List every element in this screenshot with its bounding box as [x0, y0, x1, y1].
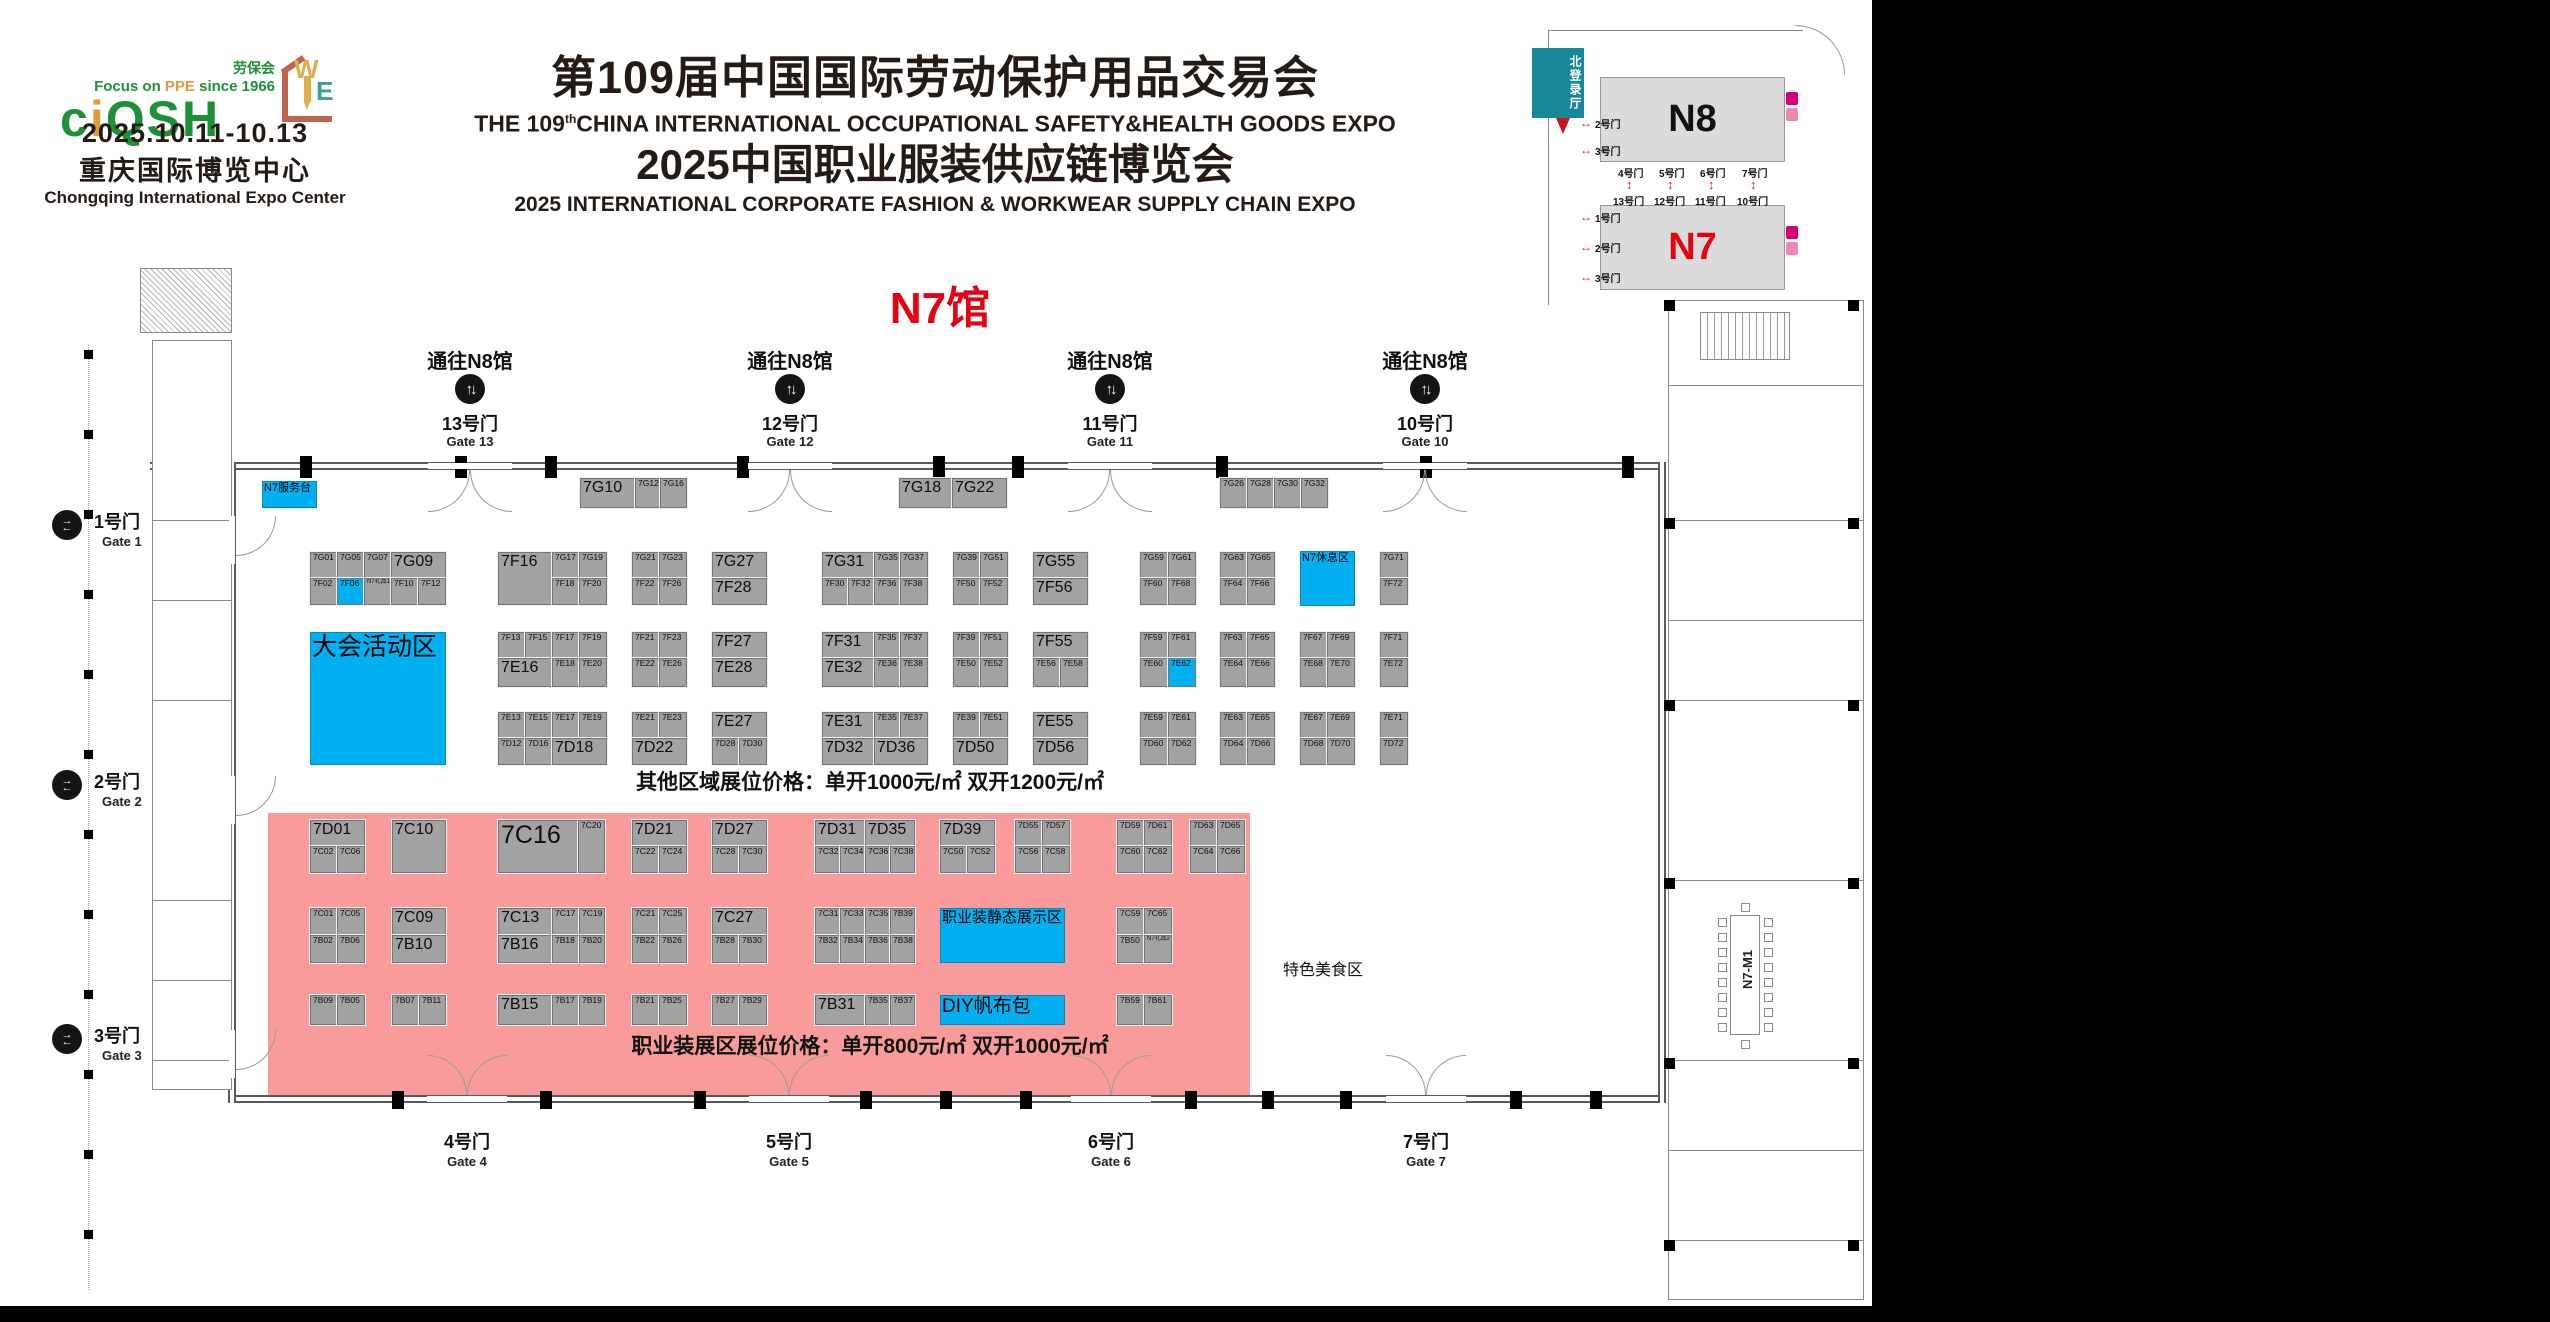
chair [1764, 993, 1773, 1002]
booth-7D39: 7D39 [940, 820, 995, 846]
booth-7G65: 7G65 [1247, 552, 1275, 578]
booth-7E50: 7E50 [953, 658, 980, 687]
zone-DIY帆布包: DIY帆布包 [940, 995, 1065, 1025]
expo-floorplan-page: 劳保会 Focus on PPE since 1966 ciQSH W E 20… [0, 0, 2550, 1322]
pillar [1664, 700, 1675, 711]
chair [1764, 1008, 1773, 1017]
door-opening [427, 1096, 507, 1102]
booth-7D12: 7D12 [498, 738, 525, 765]
pillar [1664, 878, 1675, 889]
booth-7C21: 7C21 [632, 908, 659, 935]
chair [1718, 978, 1727, 987]
booth-7F16: 7F16 [498, 552, 552, 605]
left-annex [152, 340, 232, 1090]
booth-7B31: 7B31 [815, 995, 865, 1025]
booth-7B30: 7B30 [739, 935, 767, 963]
booth-7B36: 7B36 [865, 935, 890, 963]
logo-tagline-cn: 劳保会 [233, 58, 275, 78]
booth-7F63: 7F63 [1220, 632, 1247, 658]
booth-7D62: 7D62 [1168, 738, 1196, 765]
booth-7C30: 7C30 [739, 846, 767, 873]
booth-7E65: 7E65 [1247, 712, 1275, 738]
booth-7E55: 7E55 [1033, 712, 1088, 738]
pillar [1622, 456, 1634, 478]
booth-7G19: 7G19 [579, 552, 607, 578]
booth-7D36: 7D36 [874, 738, 928, 765]
booth-7E68: 7E68 [1300, 658, 1327, 687]
pillar [540, 1091, 552, 1109]
booth-7F26: 7F26 [659, 578, 687, 605]
booth-7E17: 7E17 [552, 712, 579, 738]
booth-7C28: 7C28 [712, 846, 739, 873]
booth-7F50: 7F50 [953, 578, 980, 605]
food-zone-label: 特色美食区 [1283, 956, 1363, 980]
booth-7D59: 7D59 [1117, 820, 1144, 846]
venue-en: Chongqing International Expo Center [30, 188, 360, 208]
door-opening [428, 463, 512, 469]
gate-label-en: Gate 10 [1380, 434, 1470, 449]
booth-7F12: 7F12 [418, 578, 446, 605]
booth-7C19: 7C19 [579, 908, 605, 935]
booth-7B61: 7B61 [1144, 995, 1172, 1025]
booth-7B22: 7B22 [632, 935, 659, 963]
booth-7E27: 7E27 [712, 712, 767, 738]
booth-7E39: 7E39 [953, 712, 980, 738]
booth-7D32: 7D32 [822, 738, 874, 765]
booth-7B21: 7B21 [632, 995, 659, 1025]
booth-7F13: 7F13 [498, 632, 525, 658]
booth-7G32: 7G32 [1301, 478, 1328, 508]
booth-7B11: 7B11 [419, 995, 446, 1025]
minimap-gate-label: 2号门 [1595, 240, 1621, 255]
booth-7E13: 7E13 [498, 712, 525, 738]
booth-7F55: 7F55 [1033, 632, 1088, 658]
booth-7F17: 7F17 [552, 632, 579, 658]
booth-7G59: 7G59 [1140, 552, 1168, 578]
booth-7C06: 7C06 [337, 846, 365, 873]
booth-7G17: 7G17 [552, 552, 579, 578]
booth-7F19: 7F19 [579, 632, 607, 658]
chair [1718, 948, 1727, 957]
gate-label-cn: 11号门 [1065, 410, 1155, 436]
booth-7B34: 7B34 [840, 935, 865, 963]
booth-7F69: 7F69 [1327, 632, 1355, 658]
booth-7C13: 7C13 [498, 908, 552, 935]
booth-7C05: 7C05 [337, 908, 365, 935]
minimap-red-arrow: ↕ [1750, 177, 1757, 192]
gate-label-cn: 12号门 [745, 410, 835, 436]
booth-7D18: 7D18 [552, 738, 607, 765]
booth-7F56: 7F56 [1033, 578, 1088, 605]
minimap-gate-label: 2号门 [1595, 116, 1621, 131]
booth-7B20: 7B20 [579, 935, 605, 963]
booth-7D65: 7D65 [1217, 820, 1245, 846]
chair [1764, 963, 1773, 972]
event-dates: 2025.10.11-10.13 [30, 118, 360, 149]
door-swing-arc [428, 470, 470, 512]
chair [1741, 903, 1750, 912]
booth-7B50: 7B50 [1117, 935, 1144, 963]
minimap-red-arrow: ↔ [1580, 270, 1592, 284]
booth-7E52: 7E52 [980, 658, 1008, 687]
booth-7F37: 7F37 [900, 632, 928, 658]
booth-7D66: 7D66 [1247, 738, 1275, 765]
pillar [694, 1091, 706, 1109]
zone-职业装静态展示区: 职业装静态展示区 [940, 908, 1065, 963]
booth-7G27: 7G27 [712, 552, 767, 578]
booth-7B32: 7B32 [815, 935, 840, 963]
booth-7F39: 7F39 [953, 632, 980, 658]
booth-7B25: 7B25 [659, 995, 687, 1025]
booth-7F06: 7F06 [337, 578, 364, 605]
booth-7D60: 7D60 [1140, 738, 1168, 765]
pass-to-n8-label: 通往N8馆 [1065, 345, 1155, 374]
title2-en: 2025 INTERNATIONAL CORPORATE FASHION & W… [470, 191, 1400, 219]
minimap-gate-label: 12号门 [1654, 193, 1685, 208]
booth-7G31: 7G31 [822, 552, 874, 578]
booth-7B07: 7B07 [392, 995, 419, 1025]
booth-7C22: 7C22 [632, 846, 659, 873]
pillar [1664, 1058, 1675, 1069]
minimap-gate-label: 3号门 [1595, 143, 1621, 158]
booth-7E69: 7E69 [1327, 712, 1355, 738]
chair [1718, 933, 1727, 942]
booth-7G63: 7G63 [1220, 552, 1247, 578]
workwear-expo-logo: W E [282, 58, 348, 118]
booth-7E71: 7E71 [1380, 712, 1408, 738]
booth-7E28: 7E28 [712, 658, 767, 687]
booth-7D64: 7D64 [1220, 738, 1247, 765]
booth-7G37: 7G37 [900, 552, 928, 578]
booth-7G30: 7G30 [1274, 478, 1301, 508]
booth-7E16: 7E16 [498, 658, 552, 687]
booth-7E20: 7E20 [579, 658, 607, 687]
booth-7C17: 7C17 [552, 908, 579, 935]
pillar [1664, 300, 1675, 311]
chair [1718, 1023, 1727, 1032]
pillar [84, 990, 93, 999]
booth-7B05: 7B05 [337, 995, 365, 1025]
booth-7B16: 7B16 [498, 935, 552, 963]
booth-7F38: 7F38 [900, 578, 928, 605]
booth-7G05: 7G05 [337, 552, 364, 578]
booth-7G26: 7G26 [1220, 478, 1247, 508]
door-swing-arc [1110, 470, 1152, 512]
booth-7B59: 7B59 [1117, 995, 1144, 1025]
booth-7F23: 7F23 [659, 632, 687, 658]
gate-label-cn: 6号门 [1066, 1128, 1156, 1154]
site-boundary [88, 345, 89, 1290]
title2-cn: 2025中国职业服装供应链博览会 [470, 139, 1400, 191]
booth-7F65: 7F65 [1247, 632, 1275, 658]
booth-7D61: 7D61 [1144, 820, 1172, 846]
door-opening [749, 1096, 829, 1102]
booth-7G18: 7G18 [899, 478, 952, 508]
pillar [84, 670, 93, 679]
booth-7G10: 7G10 [580, 478, 635, 508]
booth-7E38: 7E38 [900, 658, 928, 687]
zone-N7休息区: N7休息区 [1300, 551, 1355, 606]
pillar [84, 1070, 93, 1079]
gate-label-cn: 1号门 [94, 508, 140, 534]
booth-7F66: 7F66 [1247, 578, 1275, 605]
booth-7E26: 7E26 [659, 658, 687, 687]
pillar [1262, 1091, 1274, 1109]
zone-N7服务台: N7服务台 [262, 481, 317, 508]
gate-label-cn: 5号门 [744, 1128, 834, 1154]
booth-7E59: 7E59 [1140, 712, 1168, 738]
booth-7C59: 7C59 [1117, 908, 1144, 935]
chair [1764, 1023, 1773, 1032]
minimap-red-arrow: ↕ [1708, 177, 1715, 192]
pillar [1848, 878, 1859, 889]
minimap-hall-n7: N7 [1600, 205, 1785, 290]
pillar [1848, 1240, 1859, 1251]
booth-7E22: 7E22 [632, 658, 659, 687]
gate-label-cn: 10号门 [1380, 410, 1470, 436]
leftright-arrows-icon: →← [52, 1024, 82, 1054]
booth-7E61: 7E61 [1168, 712, 1196, 738]
booth-7C32: 7C32 [815, 846, 840, 873]
booth-7B29: 7B29 [739, 995, 767, 1025]
booth-7E35: 7E35 [874, 712, 900, 738]
booth-7F36: 7F36 [874, 578, 900, 605]
booth-7D63: 7D63 [1190, 820, 1217, 846]
restroom-icon [1786, 92, 1798, 105]
booth-7B10: 7B10 [392, 935, 446, 963]
pillar [1216, 456, 1228, 478]
gate-label-en: Gate 1 [102, 534, 142, 549]
price-note-other: 其他区域展位价格：单开1000元/㎡ 双开1200元/㎡ [570, 766, 1170, 796]
booth-7D21: 7D21 [632, 820, 687, 846]
pillar [940, 1091, 952, 1109]
booth-7C31: 7C31 [815, 908, 840, 935]
minimap-hall-n8: N8 [1600, 77, 1785, 162]
pillar [860, 1091, 872, 1109]
booth-7C50: 7C50 [940, 846, 967, 873]
booth-7C35: 7C35 [865, 908, 890, 935]
booth-7G01: 7G01 [310, 552, 337, 578]
booth-7D01: 7D01 [310, 820, 365, 846]
door-opening [229, 776, 235, 824]
booth-7D56: 7D56 [1033, 738, 1088, 765]
door-swing-arc [748, 470, 790, 512]
pillar [1020, 1091, 1032, 1109]
price-note-workwear: 职业装展区展位价格：单开800元/㎡ 双开1000元/㎡ [570, 1030, 1170, 1060]
booth-7C56: 7C56 [1015, 846, 1042, 873]
door-opening [229, 516, 235, 564]
booth-7G22: 7G22 [952, 478, 1007, 508]
booth-7C38: 7C38 [890, 846, 915, 873]
booth-7F10: 7F10 [391, 578, 418, 605]
booth-7G12: 7G12 [635, 478, 660, 508]
pillar [1664, 518, 1675, 529]
booth-7B35: 7B35 [865, 995, 890, 1025]
booth-7E19: 7E19 [579, 712, 607, 738]
chair [1718, 918, 1727, 927]
pillar [1848, 1058, 1859, 1069]
booth-7E23: 7E23 [659, 712, 687, 738]
gate-label-en: Gate 3 [102, 1048, 142, 1063]
booth-7F60: 7F60 [1140, 578, 1168, 605]
chair [1764, 918, 1773, 927]
left-annex-room [140, 268, 232, 333]
updown-arrows-icon: ↑↓ [1095, 374, 1125, 404]
restroom-icon [1786, 108, 1798, 121]
booth-7F51: 7F51 [980, 632, 1008, 658]
chair [1741, 1040, 1750, 1049]
chair [1718, 993, 1727, 1002]
booth-7D22: 7D22 [632, 738, 687, 765]
booth-7F22: 7F22 [632, 578, 659, 605]
booth-7F59: 7F59 [1140, 632, 1168, 658]
pillar [84, 910, 93, 919]
booth-7F20: 7F20 [579, 578, 607, 605]
minimap-entry-arrow [1556, 118, 1570, 134]
chair [1718, 1008, 1727, 1017]
chair [1764, 978, 1773, 987]
minimap-gate-label: 11号门 [1695, 193, 1726, 208]
booth-N7礼品2: N7礼品2 [1144, 935, 1172, 963]
pillar [545, 456, 557, 478]
booth-7D57: 7D57 [1042, 820, 1070, 846]
minimap-gate-label: 3号门 [1595, 270, 1621, 285]
pillar [84, 1150, 93, 1159]
door-swing-arc [470, 470, 512, 512]
pillar [84, 1230, 93, 1239]
pillar [1012, 456, 1024, 478]
pillar [1848, 518, 1859, 529]
booth-7C20: 7C20 [578, 820, 605, 873]
updown-arrows-icon: ↑↓ [455, 374, 485, 404]
booth-7G61: 7G61 [1168, 552, 1196, 578]
door-opening [748, 463, 832, 469]
pillar [933, 456, 945, 478]
booth-7F67: 7F67 [1300, 632, 1327, 658]
booth-7B38: 7B38 [890, 935, 915, 963]
booth-7B27: 7B27 [712, 995, 739, 1025]
booth-7D72: 7D72 [1380, 738, 1408, 765]
pillar [1664, 1240, 1675, 1251]
booth-7C01: 7C01 [310, 908, 337, 935]
booth-7B37: 7B37 [890, 995, 915, 1025]
booth-7E37: 7E37 [900, 712, 928, 738]
booth-7C25: 7C25 [659, 908, 687, 935]
chair [1764, 933, 1773, 942]
booth-7G21: 7G21 [632, 552, 659, 578]
booth-7E63: 7E63 [1220, 712, 1247, 738]
booth-7E60: 7E60 [1140, 658, 1168, 687]
booth-7F35: 7F35 [874, 632, 900, 658]
leftright-arrows-icon: →← [52, 770, 82, 800]
booth-7C65: 7C65 [1144, 908, 1172, 935]
booth-7B39: 7B39 [890, 908, 915, 935]
door-swing-arc [790, 470, 832, 512]
booth-7G51: 7G51 [980, 552, 1008, 578]
booth-7B19: 7B19 [579, 995, 605, 1025]
booth-7E66: 7E66 [1247, 658, 1275, 687]
pillar [84, 750, 93, 759]
booth-7D27: 7D27 [712, 820, 767, 846]
booth-7E21: 7E21 [632, 712, 659, 738]
minimap-red-arrow: ↔ [1580, 143, 1592, 157]
booth-7F15: 7F15 [525, 632, 552, 658]
gate-label-cn: 2号门 [94, 768, 140, 794]
floorplan-sheet: 劳保会 Focus on PPE since 1966 ciQSH W E 20… [0, 0, 1872, 1306]
booth-7C64: 7C64 [1190, 846, 1217, 873]
booth-7B28: 7B28 [712, 935, 739, 963]
minimap-gate-label: 10号门 [1737, 193, 1768, 208]
booth-7E32: 7E32 [822, 658, 874, 687]
booth-7E18: 7E18 [552, 658, 579, 687]
door-swing-arc [1425, 470, 1467, 512]
door-opening [1386, 1096, 1466, 1102]
event-titles: 第109届中国国际劳动保护用品交易会 THE 109thCHINA INTERN… [470, 52, 1400, 219]
leftright-arrows-icon: →← [52, 510, 82, 540]
booth-7G09: 7G09 [391, 552, 446, 578]
booth-7C24: 7C24 [659, 846, 687, 873]
gate-label-en: Gate 2 [102, 794, 142, 809]
stairs [1700, 312, 1790, 360]
booth-7F18: 7F18 [552, 578, 579, 605]
booth-7F64: 7F64 [1220, 578, 1247, 605]
pillar [84, 350, 93, 359]
booth-7F68: 7F68 [1168, 578, 1196, 605]
booth-7G28: 7G28 [1247, 478, 1274, 508]
event-meta: 2025.10.11-10.13 重庆国际博览中心 Chongqing Inte… [30, 118, 360, 208]
pass-to-n8-label: 通往N8馆 [1380, 345, 1470, 374]
gate-label-en: Gate 13 [425, 434, 515, 449]
booth-7E31: 7E31 [822, 712, 874, 738]
door-swing-arc [1386, 1055, 1426, 1095]
pillar [392, 1091, 404, 1109]
booth-7B15: 7B15 [498, 995, 552, 1025]
pillar [1185, 1091, 1197, 1109]
booth-7F71: 7F71 [1380, 632, 1408, 658]
pillar [1510, 1091, 1522, 1109]
booth-7F21: 7F21 [632, 632, 659, 658]
booth-7G16: 7G16 [660, 478, 687, 508]
booth-7C60: 7C60 [1117, 846, 1144, 873]
booth-7D35: 7D35 [865, 820, 915, 846]
booth-7G71: 7G71 [1380, 552, 1408, 578]
minimap-gate-label: 1号门 [1595, 210, 1621, 225]
door-swing-arc [236, 776, 276, 816]
booth-7C36: 7C36 [865, 846, 890, 873]
booth-7F52: 7F52 [980, 578, 1008, 605]
pillar [84, 830, 93, 839]
booth-7B17: 7B17 [552, 995, 579, 1025]
booth-7E62: 7E62 [1168, 658, 1196, 687]
booth-7E64: 7E64 [1220, 658, 1247, 687]
booth-7F31: 7F31 [822, 632, 874, 658]
pillar [84, 590, 93, 599]
booth-7D31: 7D31 [815, 820, 865, 846]
gate-label-en: Gate 7 [1381, 1154, 1471, 1169]
minimap-red-arrow: ↔ [1580, 116, 1592, 130]
booth-7F02: 7F02 [310, 578, 337, 605]
booth-7E15: 7E15 [525, 712, 552, 738]
booth-7B09: 7B09 [310, 995, 337, 1025]
booth-7F72: 7F72 [1380, 578, 1408, 605]
booth-7F32: 7F32 [848, 578, 874, 605]
minimap-gate-label: 13号门 [1613, 193, 1644, 208]
booth-7E70: 7E70 [1327, 658, 1355, 687]
door-opening [1383, 463, 1467, 469]
hall-title: N7馆 [840, 272, 1040, 336]
booth-7E36: 7E36 [874, 658, 900, 687]
zone-大会活动区: 大会活动区 [310, 632, 446, 765]
